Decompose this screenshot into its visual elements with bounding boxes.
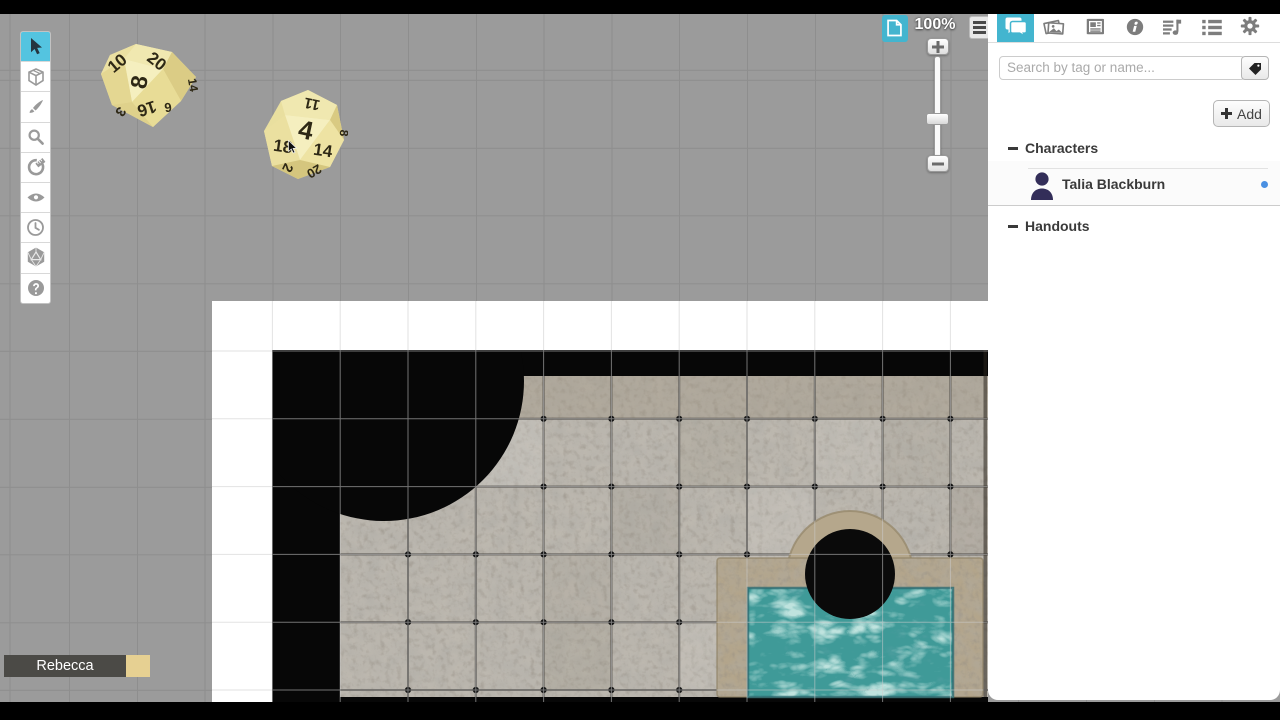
svg-text:14: 14 (185, 77, 200, 93)
svg-text:14: 14 (312, 140, 334, 162)
